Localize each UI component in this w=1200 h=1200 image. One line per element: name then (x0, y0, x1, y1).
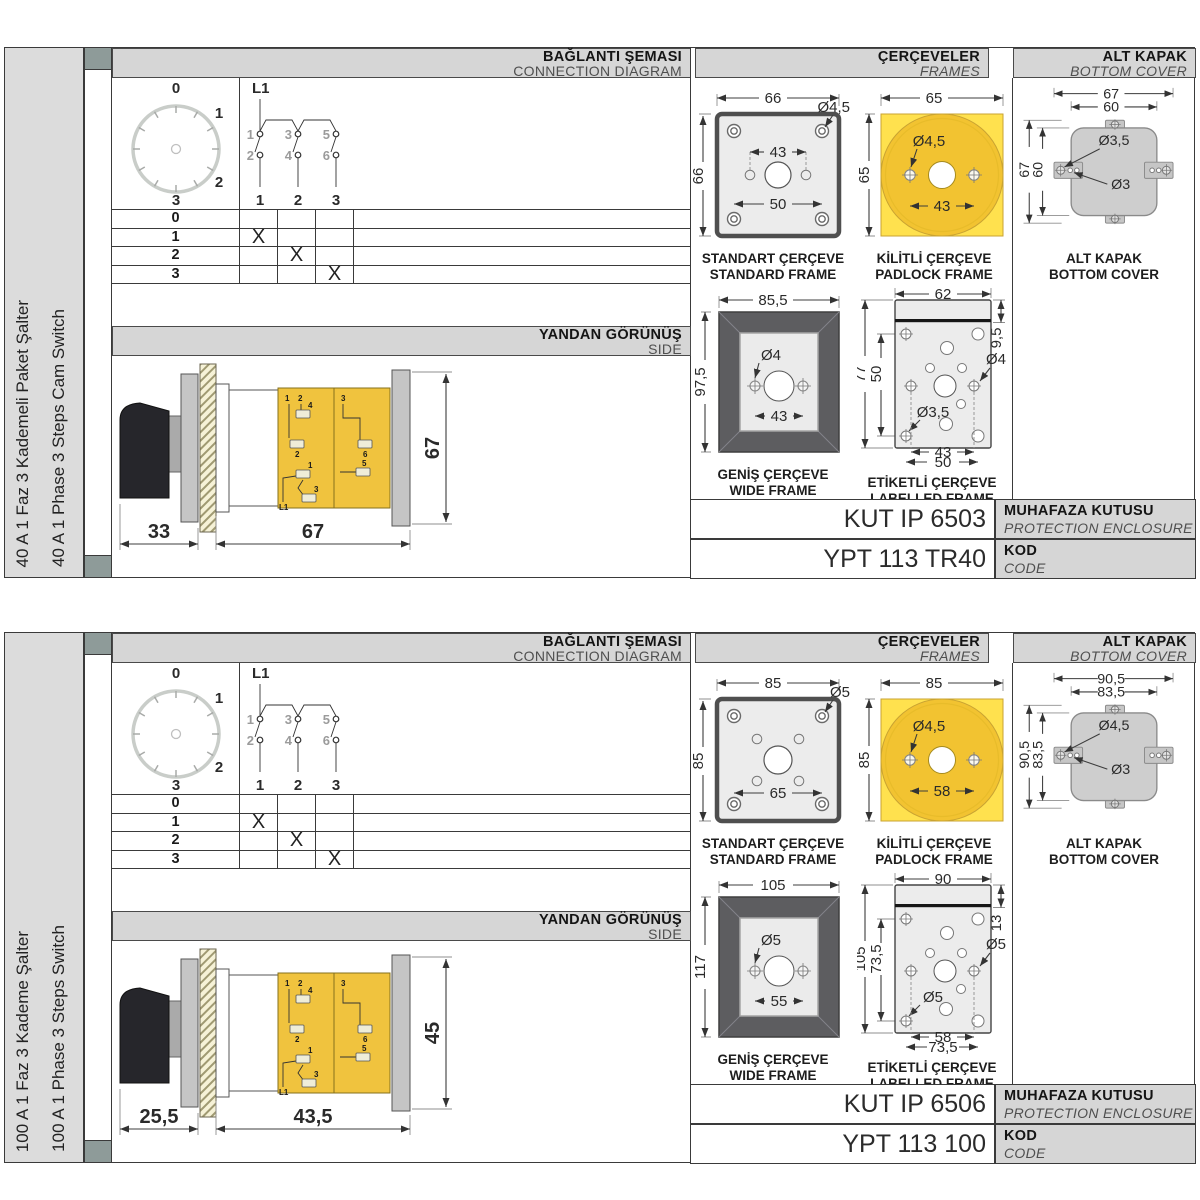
cover-label-en: BOTTOM COVER (1014, 852, 1194, 868)
enclosure-code-value: KUT IP 6506 (690, 1084, 995, 1124)
header-en: FRAMES (696, 649, 980, 663)
body-terminal-label: 3 (314, 1070, 319, 1079)
frame-label-tr: STANDART ÇERÇEVE (693, 836, 853, 852)
header-en: SIDE (113, 927, 682, 941)
product-title-en: 100 A 1 Phase 3 Steps Switch (49, 925, 69, 1152)
header-en: CONNECTION DIAGRAM (113, 649, 682, 663)
bottom-cover-drawing: 67 60 67 60 (1014, 86, 1194, 246)
frame-label-en: WIDE FRAME (693, 483, 853, 499)
dim-inner-height: 50 (868, 366, 885, 383)
side-view-header: YANDAN GÖRÜNÜŞ SIDE (112, 326, 691, 356)
frame-label-en: PADLOCK FRAME (859, 267, 1009, 283)
dim-height: 85 (859, 752, 873, 769)
datasheet-panel: BAĞLANTI ŞEMASI CONNECTION DIAGRAM 0 1 2… (111, 632, 1195, 1163)
dim-depth-height: 45 (422, 1022, 444, 1044)
dim-h2: 83,5 (1031, 741, 1047, 769)
dim-hole-small: Ø5 (923, 989, 943, 1006)
dim-hole: Ø4,5 (913, 133, 946, 150)
body-terminal-label: 3 (341, 979, 346, 988)
body-terminal-label: 1 (308, 1046, 313, 1055)
cover-label-en: BOTTOM COVER (1014, 267, 1194, 283)
switching-table: 0 1 X 2 X 3 X (112, 209, 691, 284)
frame-label-en: PADLOCK FRAME (859, 852, 1009, 868)
cover-label-tr: ALT KAPAK (1014, 836, 1194, 852)
row-label: 1 (112, 814, 240, 832)
frames-cover-divider (1012, 78, 1013, 499)
product-title-tr: 100 A 1 Faz 3 Kademe Şalter (13, 931, 33, 1152)
header-tr: YANDAN GÖRÜNÜŞ (113, 913, 682, 927)
switch-handle (120, 403, 169, 498)
dim-hole1: Ø4,5 (1099, 718, 1130, 734)
dim-height: 65 (859, 167, 873, 184)
dial-pos-0: 0 (172, 666, 180, 682)
dim-body-depth: 67 (302, 521, 324, 543)
dial-pos-3: 3 (172, 777, 180, 792)
terminal-5: 5 (323, 712, 330, 727)
body-terminal-label: 2 (298, 394, 303, 403)
wide-frame-cell: 105 117 Ø5 55 GENİŞ ÇERÇEVE WIDE FRAME (693, 875, 853, 1084)
binder-strip (84, 47, 112, 578)
terminal-6: 6 (323, 148, 330, 163)
terminal-1: 1 (247, 712, 254, 727)
terminal-1: 1 (247, 127, 254, 142)
dim-width: 105 (760, 877, 785, 894)
mark-cell (316, 795, 354, 813)
product-title-en: 40 A 1 Phase 3 Steps Cam Switch (49, 309, 69, 567)
side-view-header: YANDAN GÖRÜNÜŞ SIDE (112, 911, 691, 941)
labelled-frame-cell: 62 9,5 77 50 Ø4 (857, 286, 1007, 507)
product-section-100a: 100 A 1 Faz 3 Kademe Şalter 100 A 1 Phas… (4, 632, 1195, 1163)
switch-handle (120, 988, 169, 1083)
mark-cell (240, 832, 278, 850)
dim-inner: 65 (770, 785, 787, 802)
mounting-panel-hatch (200, 949, 216, 1117)
enclosure-code-label: MUHAFAZA KUTUSU PROTECTION ENCLOSURE (995, 499, 1196, 539)
frame-label-tr: STANDART ÇERÇEVE (693, 251, 853, 267)
datasheet-panel: BAĞLANTI ŞEMASI CONNECTION DIAGRAM 0 1 2… (111, 47, 1195, 578)
body-terminal-label: L1 (279, 503, 289, 512)
terminal-4: 4 (285, 733, 293, 748)
label-tr: MUHAFAZA KUTUSU (1004, 1088, 1195, 1105)
output-2: 2 (294, 192, 302, 209)
labelled-frame-cell: 90 13 105 73,5 Ø5 (857, 871, 1007, 1092)
header-tr: BAĞLANTI ŞEMASI (113, 50, 682, 64)
frame-label-en: WIDE FRAME (693, 1068, 853, 1084)
frames-header: ÇERÇEVELER FRAMES (695, 633, 989, 663)
terminal-3: 3 (285, 127, 292, 142)
dim-inner: 43 (934, 198, 951, 215)
mark-cell: X (316, 851, 354, 868)
table-row: 2 X (112, 831, 691, 850)
cover-label-tr: ALT KAPAK (1014, 251, 1194, 267)
wide-frame-drawing: 105 117 Ø5 55 (693, 875, 853, 1047)
dim-hole: Ø4,5 (913, 718, 946, 735)
label-en: PROTECTION ENCLOSURE (1004, 520, 1195, 537)
dim-inner: 43 (771, 408, 788, 425)
bottom-cover-cell: 67 60 67 60 (1014, 86, 1194, 283)
connection-diagram-header: BAĞLANTI ŞEMASI CONNECTION DIAGRAM (112, 633, 691, 663)
body-terminal-label: 1 (285, 394, 290, 403)
mark-cell (278, 266, 316, 283)
mark-cell (240, 851, 278, 868)
standard-frame-drawing: 66 66 43 50 Ø4,5 (693, 88, 853, 246)
standard-frame-cell: 66 66 43 50 Ø4,5 STAN (693, 88, 853, 283)
header-en: BOTTOM COVER (1014, 649, 1187, 663)
frame-label-tr: KİLİTLİ ÇERÇEVE (859, 836, 1009, 852)
schematic-input-label: L1 (252, 665, 270, 682)
dim-height: 97,5 (693, 367, 709, 396)
switching-table: 0 1 X 2 X 3 X (112, 794, 691, 869)
dim-handle-depth: 25,5 (140, 1106, 179, 1128)
header-en: BOTTOM COVER (1014, 64, 1187, 78)
table-row: 0 (112, 794, 691, 813)
dim-height: 85 (693, 753, 707, 770)
dial-pos-2: 2 (215, 759, 223, 776)
product-sidebar: 100 A 1 Faz 3 Kademe Şalter 100 A 1 Phas… (4, 632, 84, 1163)
mark-cell (240, 247, 278, 265)
output-2: 2 (294, 777, 302, 794)
dim-outer: 73,5 (928, 1039, 957, 1055)
frame-label-tr: ETİKETLİ ÇERÇEVE (857, 475, 1007, 491)
product-code-label: KOD CODE (995, 539, 1196, 579)
label-tr: KOD (1004, 543, 1195, 560)
terminal-2: 2 (247, 733, 254, 748)
binder-mark-bottom (85, 1140, 111, 1162)
frame-label-tr: GENİŞ ÇERÇEVE (693, 1052, 853, 1068)
connection-diagram-header: BAĞLANTI ŞEMASI CONNECTION DIAGRAM (112, 48, 691, 78)
dial-pos-3: 3 (172, 192, 180, 207)
mounting-panel-hatch (200, 364, 216, 532)
label-en: CODE (1004, 1145, 1195, 1162)
frame-label-tr: ETİKETLİ ÇERÇEVE (857, 1060, 1007, 1076)
row-label: 2 (112, 247, 240, 265)
output-3: 3 (332, 777, 340, 794)
side-view-drawing: 1 2 4 2 3 6 1 3 5 L1 45 25,5 43,5 (112, 943, 690, 1161)
switch-dial-drawing: 0 1 2 3 (115, 81, 237, 207)
dial-pos-1: 1 (215, 690, 223, 707)
mark-cell (316, 814, 354, 832)
dim-hole: Ø5 (761, 932, 781, 949)
enclosure-code-label: MUHAFAZA KUTUSU PROTECTION ENCLOSURE (995, 1084, 1196, 1124)
row-label: 0 (112, 795, 240, 813)
bottom-cover-cell: 90,5 83,5 90,5 83,5 (1014, 671, 1194, 868)
body-terminal-label: 6 (363, 450, 368, 459)
dim-width: 85 (926, 675, 943, 692)
padlock-frame-drawing: 65 65 Ø4,5 43 (859, 88, 1009, 246)
product-code-value: YPT 113 100 (690, 1124, 995, 1164)
row-label: 1 (112, 229, 240, 247)
table-row: 1 X (112, 813, 691, 832)
body-terminal-label: 4 (308, 986, 313, 995)
frame-label-tr: GENİŞ ÇERÇEVE (693, 467, 853, 483)
frame-label-tr: KİLİTLİ ÇERÇEVE (859, 251, 1009, 267)
dim-hole1: Ø3,5 (1099, 133, 1130, 149)
terminal-3: 3 (285, 712, 292, 727)
label-en: PROTECTION ENCLOSURE (1004, 1105, 1195, 1122)
frames-header: ÇERÇEVELER FRAMES (695, 48, 989, 78)
product-title-tr: 40 A 1 Faz 3 Kademeli Paket Şalter (13, 300, 33, 567)
wide-frame-cell: 85,5 97,5 Ø4 43 GENİŞ ÇERÇEVE WIDE FRAME (693, 290, 853, 499)
body-terminal-label: 5 (362, 459, 367, 468)
header-tr: ALT KAPAK (1014, 50, 1187, 64)
dim-outer: 50 (770, 196, 787, 213)
contact-schematic-drawing: L1 1 3 5 2 4 6 1 2 3 (240, 79, 455, 209)
bottom-cover-header: ALT KAPAK BOTTOM COVER (1013, 48, 1196, 78)
dim-inner-height: 73,5 (868, 944, 885, 973)
dim-hole-small: Ø3,5 (917, 404, 950, 421)
row-label: 2 (112, 832, 240, 850)
mark-cell: X (316, 266, 354, 283)
dim-outer: 50 (935, 454, 952, 470)
frame-label-en: STANDARD FRAME (693, 852, 853, 868)
product-section-40a: 40 A 1 Faz 3 Kademeli Paket Şalter 40 A … (4, 47, 1195, 578)
header-en: CONNECTION DIAGRAM (113, 64, 682, 78)
mark-cell (278, 851, 316, 868)
body-terminal-label: 2 (295, 450, 300, 459)
mark-cell: X (278, 247, 316, 265)
header-tr: BAĞLANTI ŞEMASI (113, 635, 682, 649)
dial-pos-2: 2 (215, 174, 223, 191)
body-terminal-label: 4 (308, 401, 313, 410)
table-row: 3 X (112, 265, 691, 284)
body-terminal-label: 5 (362, 1044, 367, 1053)
mark-cell: X (240, 229, 278, 247)
body-terminal-label: L1 (279, 1088, 289, 1097)
dial-pos-0: 0 (172, 81, 180, 97)
wide-frame-drawing: 85,5 97,5 Ø4 43 (693, 290, 853, 462)
output-1: 1 (256, 777, 264, 794)
body-terminal-label: 6 (363, 1035, 368, 1044)
label-tr: KOD (1004, 1128, 1195, 1145)
dim-w2: 83,5 (1097, 685, 1125, 701)
table-row: 3 X (112, 850, 691, 869)
header-en: SIDE (113, 342, 682, 356)
terminal-4: 4 (285, 148, 293, 163)
dim-hole: Ø4 (761, 347, 781, 364)
header-tr: ÇERÇEVELER (696, 635, 980, 649)
dim-hole: Ø5 (830, 684, 850, 701)
dim-width: 85 (765, 675, 782, 692)
dim-hole: Ø5 (986, 936, 1006, 953)
label-tr: MUHAFAZA KUTUSU (1004, 503, 1195, 520)
body-terminal-label: 1 (285, 979, 290, 988)
product-sidebar: 40 A 1 Faz 3 Kademeli Paket Şalter 40 A … (4, 47, 84, 578)
header-tr: ÇERÇEVELER (696, 50, 980, 64)
binder-mark-bottom (85, 555, 111, 577)
frame-label-en: STANDARD FRAME (693, 267, 853, 283)
row-label: 0 (112, 210, 240, 228)
standard-frame-drawing: 85 85 65 Ø5 (693, 673, 853, 831)
binder-strip (84, 632, 112, 1163)
padlock-frame-cell: 65 65 Ø4,5 43 KİLİTLİ ÇERÇEVE PADLOCK FR… (859, 88, 1009, 283)
mark-cell: X (278, 832, 316, 850)
header-tr: ALT KAPAK (1014, 635, 1187, 649)
padlock-frame-cell: 85 85 Ø4,5 58 KİLİTLİ ÇERÇEVE PADLOCK FR… (859, 673, 1009, 868)
terminal-5: 5 (323, 127, 330, 142)
body-terminal-label: 2 (295, 1035, 300, 1044)
labelled-frame-drawing: 62 9,5 77 50 Ø4 (857, 286, 1007, 470)
frames-cover-divider (1012, 663, 1013, 1084)
body-terminal-label: 3 (314, 485, 319, 494)
dim-height: 117 (693, 955, 709, 979)
catalog-page: { "sections": [ { "sidebar": {"title_tr"… (0, 0, 1200, 1200)
body-terminal-label: 2 (298, 979, 303, 988)
dim-depth-height: 67 (422, 437, 444, 459)
body-terminal-label: 3 (341, 394, 346, 403)
table-row: 0 (112, 209, 691, 228)
dim-hole2: Ø3 (1111, 762, 1130, 778)
binder-mark-top (85, 633, 111, 655)
header-tr: YANDAN GÖRÜNÜŞ (113, 328, 682, 342)
table-row: 1 X (112, 228, 691, 247)
dim-height: 66 (693, 168, 707, 185)
output-1: 1 (256, 192, 264, 209)
bottom-cover-drawing: 90,5 83,5 90,5 83,5 (1014, 671, 1194, 831)
schematic-input-label: L1 (252, 80, 270, 97)
dim-width: 66 (765, 90, 782, 107)
dim-handle-depth: 33 (148, 521, 170, 543)
dim-body-depth: 43,5 (294, 1106, 333, 1128)
dim-width: 85,5 (758, 292, 787, 309)
dim-width: 65 (926, 90, 943, 107)
binder-mark-top (85, 48, 111, 70)
row-label: 3 (112, 851, 240, 868)
product-code-value: YPT 113 TR40 (690, 539, 995, 579)
mark-cell (278, 210, 316, 228)
mark-cell: X (240, 814, 278, 832)
dim-w2: 60 (1103, 100, 1119, 116)
terminal-2: 2 (247, 148, 254, 163)
body-terminal-label: 1 (308, 461, 313, 470)
dim-hole: Ø4 (986, 351, 1006, 368)
dim-inner: 43 (770, 144, 787, 161)
mark-cell (316, 210, 354, 228)
dim-inner: 55 (771, 993, 788, 1010)
padlock-frame-drawing: 85 85 Ø4,5 58 (859, 673, 1009, 831)
label-en: CODE (1004, 560, 1195, 577)
mark-cell (316, 229, 354, 247)
labelled-frame-drawing: 90 13 105 73,5 Ø5 (857, 871, 1007, 1055)
mark-cell (278, 795, 316, 813)
side-view-drawing: 1 2 4 2 3 6 1 3 5 L1 67 33 67 (112, 358, 690, 576)
contact-schematic-drawing: L1 1 3 5 2 4 6 1 2 3 (240, 664, 455, 794)
mark-cell (240, 266, 278, 283)
dim-inner: 58 (934, 783, 951, 800)
table-row: 2 X (112, 246, 691, 265)
product-code-label: KOD CODE (995, 1124, 1196, 1164)
output-3: 3 (332, 192, 340, 209)
dial-pos-1: 1 (215, 105, 223, 122)
standard-frame-cell: 85 85 65 Ø5 STAN (693, 673, 853, 868)
dim-hole2: Ø3 (1111, 177, 1130, 193)
dim-hole: Ø4,5 (817, 99, 850, 116)
dim-h2: 60 (1031, 162, 1047, 178)
enclosure-code-value: KUT IP 6503 (690, 499, 995, 539)
bottom-cover-header: ALT KAPAK BOTTOM COVER (1013, 633, 1196, 663)
header-en: FRAMES (696, 64, 980, 78)
terminal-6: 6 (323, 733, 330, 748)
row-label: 3 (112, 266, 240, 283)
switch-dial-drawing: 0 1 2 3 (115, 666, 237, 792)
